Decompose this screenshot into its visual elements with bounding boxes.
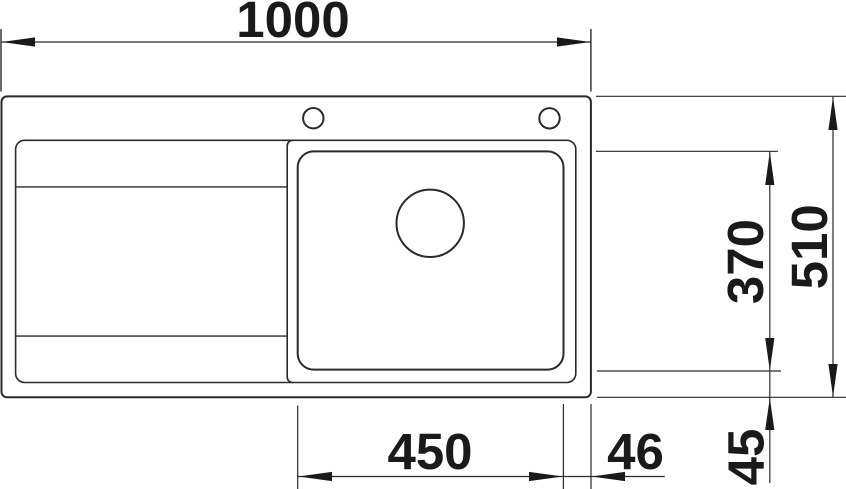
svg-text:45: 45 — [718, 429, 775, 486]
svg-text:1000: 1000 — [236, 0, 349, 48]
svg-text:370: 370 — [717, 219, 774, 304]
svg-text:46: 46 — [607, 423, 664, 480]
svg-text:450: 450 — [387, 423, 472, 480]
svg-text:510: 510 — [781, 204, 838, 289]
